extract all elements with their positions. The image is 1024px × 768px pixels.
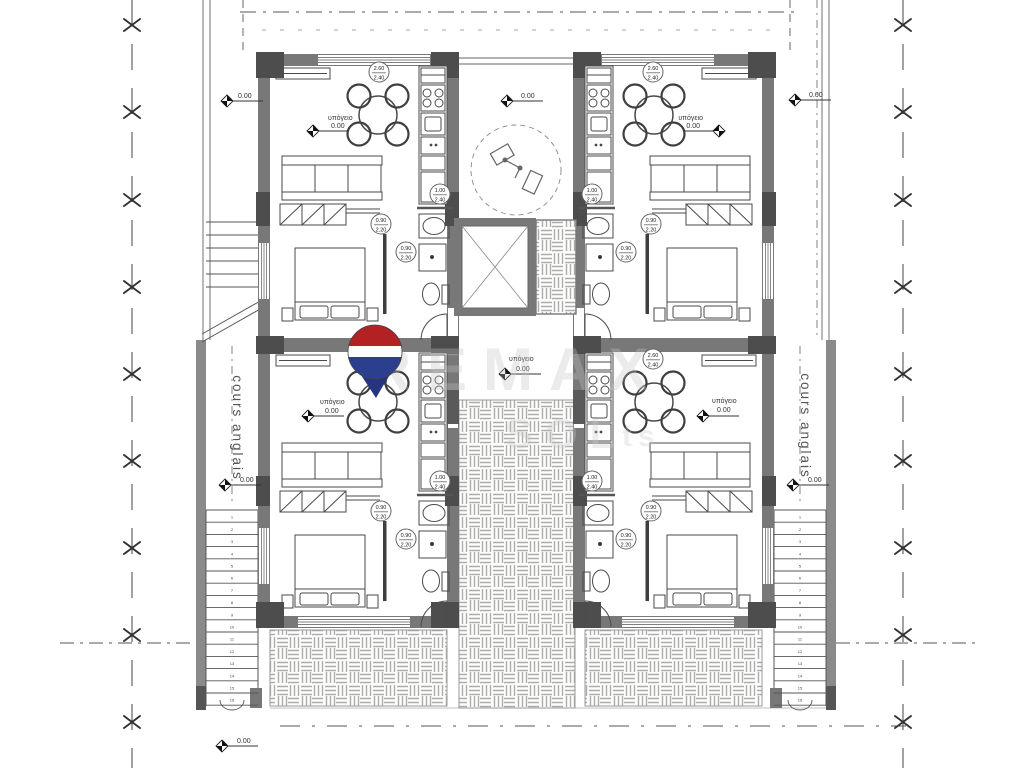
svg-text:7: 7 <box>231 588 234 593</box>
svg-text:15: 15 <box>230 686 235 691</box>
watermark-fragment: ts <box>622 420 661 453</box>
dim-label: 1.002.40 <box>582 184 602 204</box>
level-value: 0.00 <box>238 93 252 100</box>
svg-text:2: 2 <box>799 527 802 532</box>
unit-top-left <box>276 66 453 340</box>
svg-text:15: 15 <box>798 686 803 691</box>
dim-label: 0.902.20 <box>371 214 391 234</box>
dim-label: 0.902.20 <box>641 214 661 234</box>
unit-top-right <box>579 66 756 340</box>
right-light-well-label: cours anglais <box>798 373 813 479</box>
svg-text:2.60: 2.60 <box>374 66 385 72</box>
svg-text:3: 3 <box>231 539 234 544</box>
watermark-brand: REMAX <box>368 336 665 403</box>
dim-label: 0.902.20 <box>616 529 636 549</box>
turning-circle-icon <box>471 125 561 215</box>
level-value: 0.00 <box>686 123 700 130</box>
svg-text:0.90: 0.90 <box>646 505 657 511</box>
level-value: 0.00 <box>331 123 345 130</box>
svg-text:10: 10 <box>230 625 235 630</box>
right-light-well-and-stairs <box>770 0 836 710</box>
basement-label: υπόγειο <box>320 398 345 406</box>
svg-text:2.40: 2.40 <box>587 484 598 490</box>
basement-label: υπόγειο <box>712 397 737 405</box>
svg-text:12: 12 <box>230 649 235 654</box>
dim-label: 0.902.20 <box>616 242 636 262</box>
svg-text:9: 9 <box>231 612 234 617</box>
level-value: 0.00 <box>237 738 251 745</box>
svg-text:0.90: 0.90 <box>621 246 632 252</box>
svg-text:0.90: 0.90 <box>376 218 387 224</box>
svg-text:16: 16 <box>230 698 235 703</box>
svg-text:0.90: 0.90 <box>401 533 412 539</box>
svg-text:4: 4 <box>231 551 234 556</box>
svg-text:12: 12 <box>798 649 803 654</box>
level-value: 0.00 <box>717 407 731 414</box>
svg-text:1.00: 1.00 <box>435 188 446 194</box>
svg-text:7: 7 <box>799 588 802 593</box>
level-value: 0.00 <box>809 92 823 99</box>
svg-text:2: 2 <box>231 527 234 532</box>
core-paved-landing <box>536 220 576 314</box>
svg-text:0.90: 0.90 <box>646 218 657 224</box>
dim-label: 0.902.20 <box>371 501 391 521</box>
svg-text:13: 13 <box>230 661 235 666</box>
svg-text:2.20: 2.20 <box>646 227 657 233</box>
dim-label: 1.002.40 <box>430 184 450 204</box>
dim-label: 2.602.40 <box>643 62 663 82</box>
svg-text:6: 6 <box>799 576 802 581</box>
dim-label: 1.002.40 <box>430 471 450 491</box>
svg-text:2.40: 2.40 <box>374 75 385 81</box>
svg-text:1.00: 1.00 <box>587 188 598 194</box>
svg-text:2.20: 2.20 <box>401 542 412 548</box>
svg-text:11: 11 <box>230 637 235 642</box>
svg-text:2.20: 2.20 <box>401 255 412 261</box>
basement-label: υπόγειο <box>328 114 353 122</box>
floor-plan-canvas: 1234567891011121314151612345678910111213… <box>0 0 1024 768</box>
svg-text:2.40: 2.40 <box>648 75 659 81</box>
level-value: 0.00 <box>521 93 535 100</box>
svg-text:2.40: 2.40 <box>587 197 598 203</box>
left-light-well-label: cours anglais <box>230 375 245 481</box>
svg-text:1.00: 1.00 <box>587 475 598 481</box>
watermark: REMAX SOL ts <box>368 336 665 457</box>
svg-text:2.40: 2.40 <box>435 484 446 490</box>
svg-text:1: 1 <box>799 515 802 520</box>
level-value: 0.00 <box>325 408 339 415</box>
dim-label: 2.602.40 <box>369 62 389 82</box>
svg-text:2.20: 2.20 <box>376 227 387 233</box>
svg-text:2.20: 2.20 <box>376 514 387 520</box>
svg-text:0.90: 0.90 <box>621 533 632 539</box>
basement-label: υπόγειο <box>678 114 703 122</box>
svg-text:0.90: 0.90 <box>401 246 412 252</box>
dim-label: 0.902.20 <box>641 501 661 521</box>
svg-text:4: 4 <box>799 551 802 556</box>
svg-text:16: 16 <box>798 698 803 703</box>
svg-text:1.00: 1.00 <box>435 475 446 481</box>
dim-label: 1.002.40 <box>582 471 602 491</box>
svg-text:2.60: 2.60 <box>648 66 659 72</box>
svg-text:2.20: 2.20 <box>621 542 632 548</box>
svg-text:1: 1 <box>231 515 234 520</box>
dim-label: 0.902.20 <box>396 529 416 549</box>
svg-text:14: 14 <box>798 673 803 678</box>
svg-text:2.40: 2.40 <box>435 197 446 203</box>
svg-text:2.20: 2.20 <box>621 255 632 261</box>
svg-text:6: 6 <box>231 576 234 581</box>
elevator-shaft <box>454 218 536 316</box>
svg-text:14: 14 <box>230 673 235 678</box>
left-light-well-and-stairs <box>196 0 262 710</box>
svg-text:9: 9 <box>799 612 802 617</box>
svg-text:11: 11 <box>798 637 803 642</box>
svg-text:2.20: 2.20 <box>646 514 657 520</box>
svg-text:8: 8 <box>231 600 234 605</box>
svg-text:13: 13 <box>798 661 803 666</box>
watermark-fragment: SOL <box>505 410 627 457</box>
svg-text:8: 8 <box>799 600 802 605</box>
dim-label: 0.902.20 <box>396 242 416 262</box>
svg-text:5: 5 <box>799 564 802 569</box>
svg-text:10: 10 <box>798 625 803 630</box>
svg-text:5: 5 <box>231 564 234 569</box>
svg-text:0.90: 0.90 <box>376 505 387 511</box>
svg-text:3: 3 <box>799 539 802 544</box>
